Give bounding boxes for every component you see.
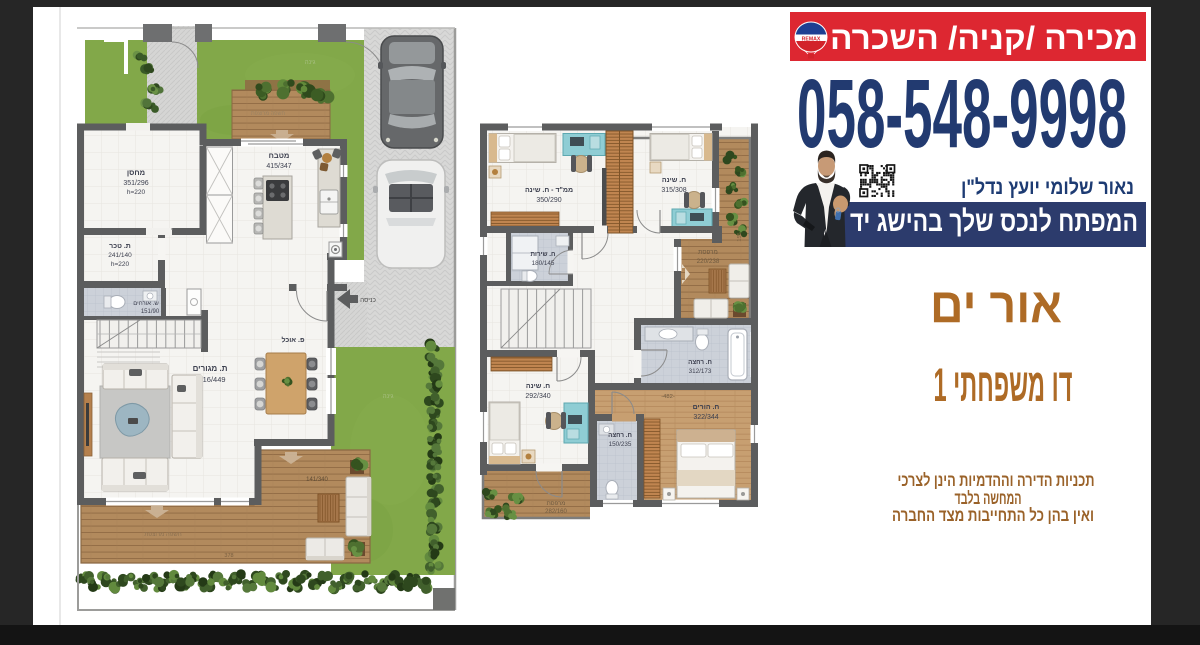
svg-text:516/449: 516/449: [198, 375, 225, 384]
svg-text:ח. שינה: ח. שינה: [526, 383, 550, 390]
svg-text:150/235: 150/235: [609, 441, 632, 448]
svg-text:322/344: 322/344: [693, 414, 718, 421]
svg-text:ח. רחצה: ח. רחצה: [608, 432, 632, 439]
svg-text:אור ים: אור ים: [930, 279, 1062, 333]
svg-text:ח. שינה: ח. שינה: [662, 177, 686, 184]
svg-text:ש. אורחים: ש. אורחים: [133, 301, 159, 307]
svg-text:ת. טכר: ת. טכר: [109, 243, 131, 250]
svg-text:378: 378: [224, 553, 233, 559]
svg-text:מחסן: מחסן: [127, 168, 145, 177]
svg-text:מכירה /קניה/ השכרה: מכירה /קניה/ השכרה: [830, 20, 1138, 56]
svg-text:חשפה מרוצפת: חשפה מרוצפת: [144, 532, 181, 538]
svg-text:גינה: גינה: [304, 59, 315, 66]
svg-text:תכניות הדירה וההדמיות הינן לצר: תכניות הדירה וההדמיות הינן לצרכי: [898, 471, 1095, 490]
svg-text:350/290: 350/290: [536, 197, 561, 204]
svg-text:155: 155: [737, 232, 743, 241]
svg-text:058-548-9998: 058-548-9998: [797, 59, 1127, 168]
svg-text:ח. רחצה: ח. רחצה: [688, 359, 712, 366]
svg-text:151/90: 151/90: [141, 309, 160, 315]
svg-text:מרפסת: מרפסת: [547, 501, 566, 507]
svg-text:מרפסת: מרפסת: [698, 249, 718, 256]
svg-text:h=220: h=220: [127, 189, 146, 196]
svg-text:h=220: h=220: [111, 261, 130, 268]
svg-text:גינה: גינה: [382, 393, 393, 400]
svg-text:ת. מגורים: ת. מגורים: [193, 364, 228, 373]
svg-text:פ. אוכל: פ. אוכל: [281, 336, 305, 344]
svg-text:המפתח לנכס שלך בהישג יד: המפתח לנכס שלך בהישג יד: [850, 206, 1138, 238]
svg-text:ממ"ד - ח. שינה: ממ"ד - ח. שינה: [525, 187, 573, 194]
svg-text:141/340: 141/340: [306, 477, 328, 483]
svg-text:ואין בהן כל התחייבות מצד החברה: ואין בהן כל התחייבות מצד החברה: [892, 506, 1094, 525]
svg-text:ח. הורים: ח. הורים: [693, 404, 720, 411]
svg-text:ח. שירות: ח. שירות: [531, 251, 556, 258]
svg-text:חשפה מרוצפת: חשפה מרוצפת: [251, 111, 286, 117]
svg-text:-482-: -482-: [661, 394, 675, 400]
svg-text:351/296: 351/296: [123, 180, 148, 187]
svg-text:241/140: 241/140: [108, 252, 132, 259]
svg-text:315/308: 315/308: [661, 187, 686, 194]
svg-text:415/347: 415/347: [266, 163, 291, 170]
svg-text:180/145: 180/145: [532, 260, 555, 267]
svg-text:נאור שלומי יועץ נדל"ן: נאור שלומי יועץ נדל"ן: [961, 176, 1134, 199]
svg-text:דו משפחתי 1: דו משפחתי 1: [933, 358, 1072, 411]
svg-text:220/238: 220/238: [697, 258, 720, 265]
svg-text:REMAX: REMAX: [802, 37, 821, 43]
svg-text:292/340: 292/340: [525, 393, 550, 400]
svg-text:כניסה: כניסה: [360, 297, 376, 304]
svg-text:282/160: 282/160: [545, 509, 567, 515]
svg-text:מטבח: מטבח: [269, 151, 290, 160]
svg-text:312/173: 312/173: [689, 368, 712, 375]
